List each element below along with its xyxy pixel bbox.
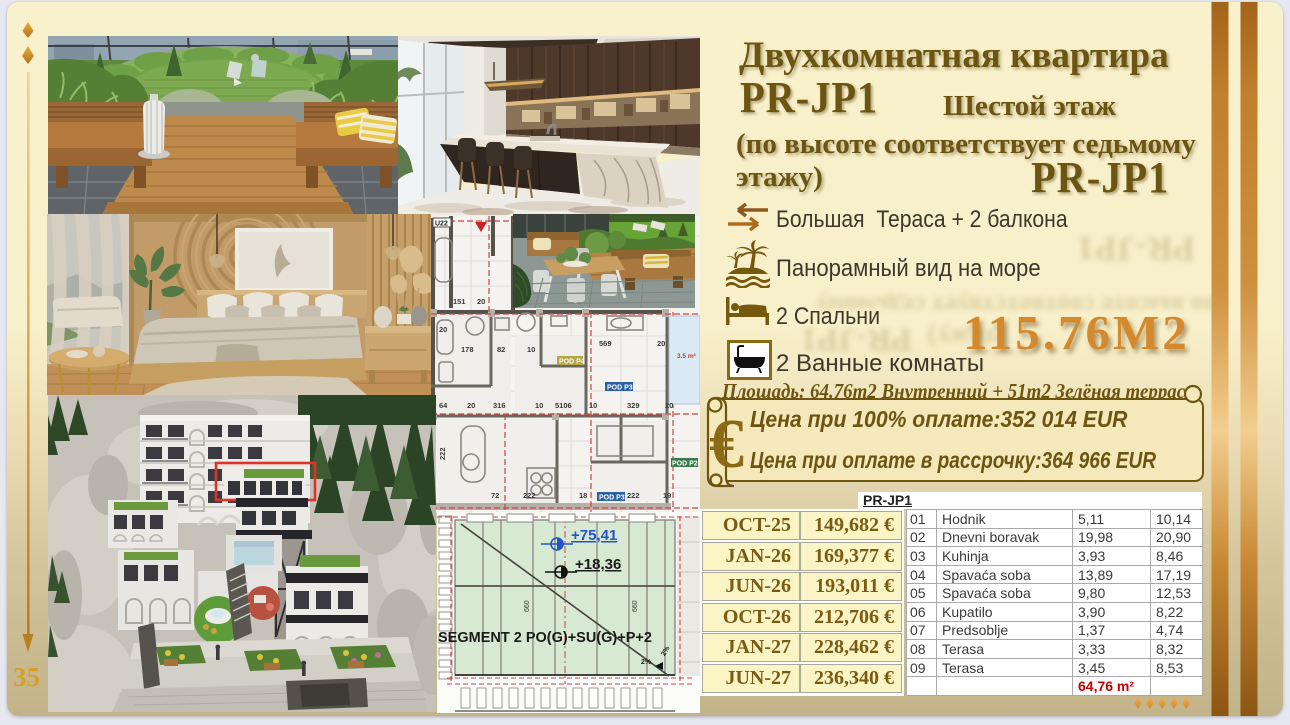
svg-text:222: 222: [523, 491, 536, 500]
svg-text:64: 64: [439, 401, 448, 410]
svg-text:10: 10: [527, 345, 535, 354]
svg-text:20: 20: [665, 401, 673, 410]
svg-text:U22: U22: [435, 221, 448, 228]
svg-text:2%: 2%: [641, 659, 652, 666]
svg-text:19: 19: [663, 491, 671, 500]
svg-text:€: €: [709, 406, 744, 483]
svg-text:+18,36: +18,36: [575, 556, 621, 573]
svg-text:178: 178: [461, 345, 474, 354]
svg-text:POD P4: POD P4: [559, 359, 585, 366]
svg-text:222: 222: [438, 447, 447, 460]
svg-text:316: 316: [493, 401, 506, 410]
svg-text:20: 20: [477, 297, 485, 306]
svg-text:POD P3: POD P3: [599, 495, 625, 502]
svg-text:3.5 m²: 3.5 m²: [677, 353, 697, 360]
svg-text:+75,41: +75,41: [571, 527, 617, 544]
svg-text:SEGMENT 2 PO(G)+SU(G)+P+2: SEGMENT 2 PO(G)+SU(G)+P+2: [438, 630, 652, 646]
svg-text:660: 660: [632, 600, 639, 612]
svg-text:222: 222: [627, 491, 640, 500]
svg-text:82: 82: [497, 345, 505, 354]
svg-text:POD P2: POD P2: [672, 461, 698, 468]
svg-text:18: 18: [579, 491, 587, 500]
svg-text:20: 20: [467, 401, 475, 410]
svg-text:151: 151: [453, 297, 466, 306]
svg-text:10: 10: [589, 401, 597, 410]
svg-text:660: 660: [524, 600, 531, 612]
svg-text:569: 569: [599, 339, 612, 348]
svg-text:20: 20: [439, 325, 447, 334]
svg-text:POD P3: POD P3: [607, 385, 633, 392]
svg-text:10: 10: [535, 401, 543, 410]
svg-text:5106: 5106: [555, 401, 572, 410]
svg-text:72: 72: [491, 491, 499, 500]
svg-text:20: 20: [657, 339, 665, 348]
svg-text:329: 329: [627, 401, 640, 410]
